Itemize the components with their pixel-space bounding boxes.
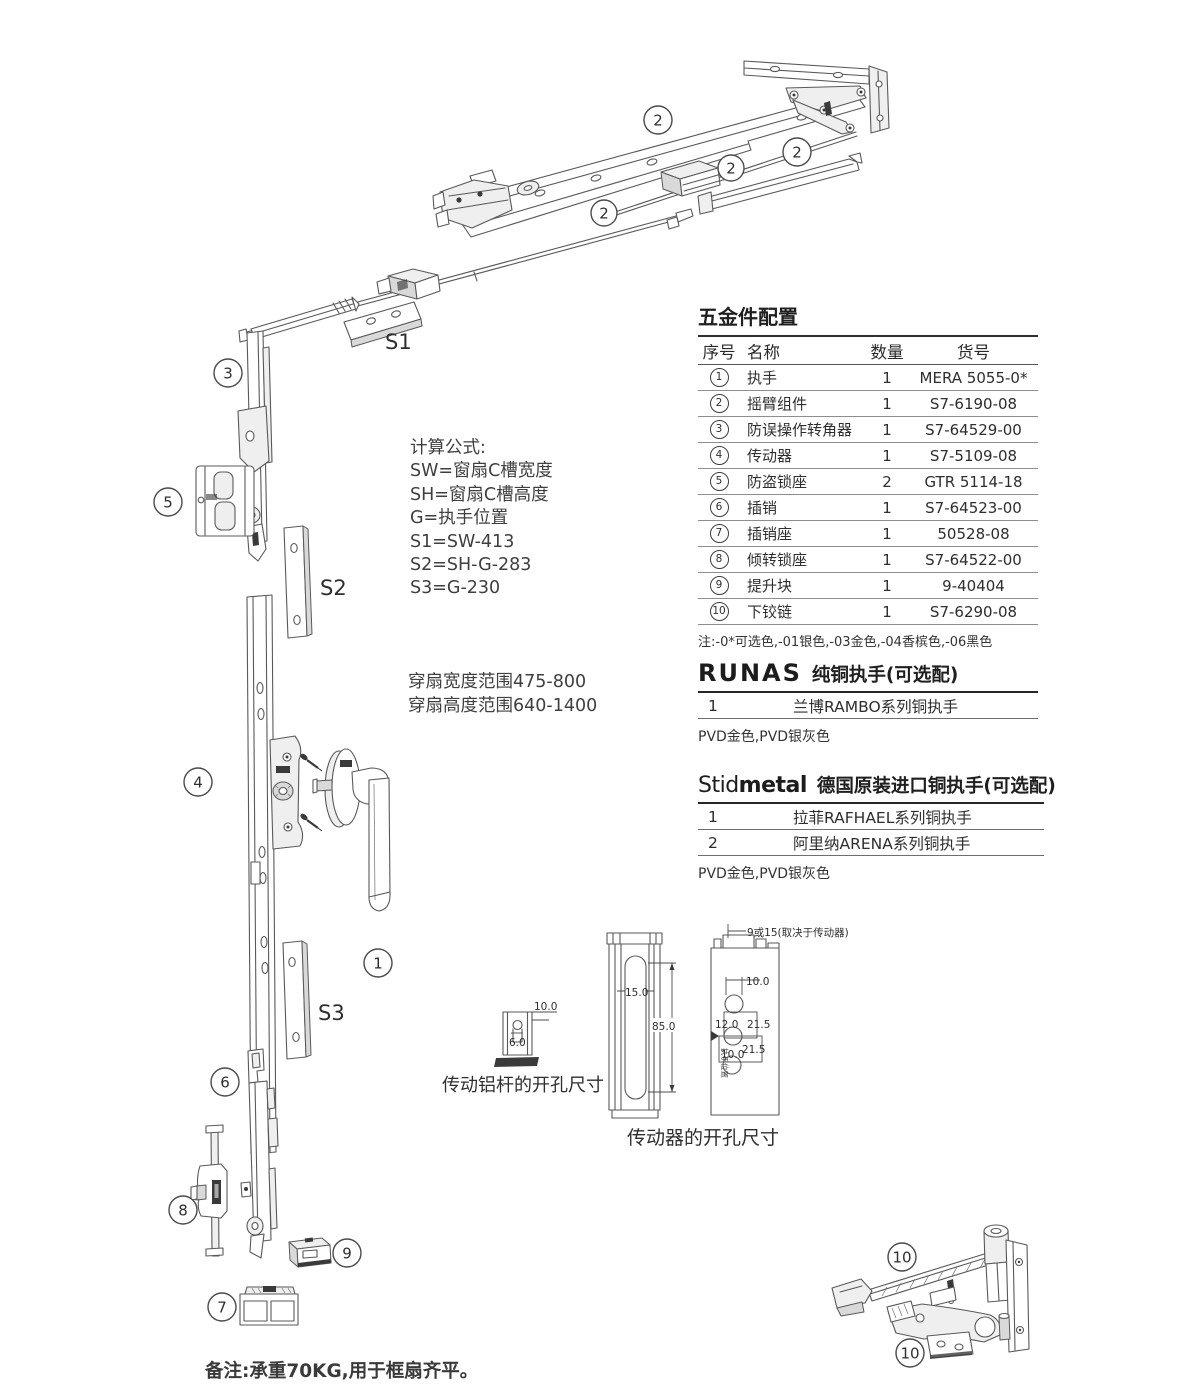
- part-qty: 1: [865, 369, 909, 387]
- callout-part1: 1: [364, 949, 392, 977]
- dim-offset-b: 21.5: [742, 1044, 765, 1056]
- row-number-badge: 9: [710, 576, 729, 595]
- part-1-handle: [313, 749, 390, 911]
- row-number-badge: 3: [710, 420, 729, 439]
- row-number-badge: 1: [710, 368, 729, 387]
- stidmetal-logo-bold: metal: [739, 773, 807, 798]
- col-header-code: 货号: [909, 339, 1038, 363]
- option-name: 拉菲RAFHAEL系列铜执手: [783, 806, 1044, 828]
- callout-label: 2: [792, 144, 802, 162]
- part-code: GTR 5114-18: [909, 473, 1038, 491]
- option-no: 2: [698, 834, 783, 852]
- part-3-corner-drive: [238, 297, 359, 561]
- formula-line: SH=窗扇C槽高度: [410, 484, 553, 507]
- callout-label: 9: [342, 1245, 352, 1263]
- part-name: 插销座: [740, 523, 865, 544]
- formula-line: SW=窗扇C槽宽度: [410, 460, 553, 483]
- dim-rod-width: 10.0: [534, 1001, 557, 1013]
- option-row: 1 拉菲RAFHAEL系列铜执手: [698, 804, 1044, 830]
- part-code: S7-6190-08: [909, 395, 1038, 413]
- part-7-bolt-keeper: [240, 1286, 298, 1325]
- col-header-no: 序号: [698, 339, 740, 363]
- part-name: 提升块: [740, 575, 865, 596]
- part-qty: 1: [865, 499, 909, 517]
- hardware-table-header: 序号 名称 数量 货号: [698, 337, 1038, 365]
- part-name: 摇臂组件: [740, 393, 865, 414]
- option-row: 2 阿里纳ARENA系列铜执手: [698, 830, 1044, 856]
- part-code: MERA 5055-0*: [909, 369, 1038, 387]
- table-row: 6插销1S7-64523-00: [698, 495, 1038, 521]
- bottom-remark: 备注:承重70KG,用于框扇齐平。: [205, 1357, 478, 1383]
- stidmetal-title: 德国原装进口铜执手(可选配): [817, 772, 1056, 798]
- part-name: 执手: [740, 367, 865, 388]
- part-code: S7-5109-08: [909, 447, 1038, 465]
- callout-label: 1: [373, 955, 383, 973]
- callout-part5: 5: [154, 488, 182, 516]
- formula-line: S1=SW-413: [410, 531, 553, 554]
- part-qty: 1: [865, 447, 909, 465]
- table-row: 10下铰链1S7-6290-08: [698, 599, 1038, 625]
- row-number-badge: 2: [710, 394, 729, 413]
- part-qty: 1: [865, 577, 909, 595]
- stidmetal-logo-light: Stid: [698, 773, 739, 798]
- sash-height-range: 穿扇高度范围640-1400: [408, 695, 597, 719]
- dim-slot-height: 85.0: [652, 1021, 675, 1033]
- callout-label: 5: [163, 494, 173, 512]
- callout-label: 10: [892, 1249, 911, 1267]
- option-name: 兰博RAMBO系列铜执手: [783, 695, 1038, 717]
- hardware-table: 五金件配置 序号 名称 数量 货号 1执手1MERA 5055-0* 2摇臂组件…: [698, 301, 1038, 650]
- part-code: S7-64523-00: [909, 499, 1038, 517]
- callout-part3: 3: [214, 359, 242, 387]
- col-header-name: 名称: [740, 339, 865, 363]
- part-code: 9-40404: [909, 577, 1038, 595]
- part-name: 防盗锁座: [740, 471, 865, 492]
- table-row: 2摇臂组件1S7-6190-08: [698, 391, 1038, 417]
- part-name: 防误操作转角器: [740, 419, 865, 440]
- callout-label: 2: [599, 205, 609, 223]
- callout-label: 3: [223, 365, 233, 383]
- formula-line: G=执手位置: [410, 507, 553, 530]
- callout-part2-c: 2: [783, 138, 811, 166]
- part-8-tilt-lock: [191, 1125, 227, 1256]
- hardware-spec-sheet: 10.0 6.0 传动铝杆的开孔尺寸 15.0 85.0 9或15(取决于传动器…: [0, 0, 1200, 1400]
- formula-title: 计算公式:: [410, 437, 553, 460]
- callout-part8: 8: [169, 1196, 197, 1224]
- part-code: S7-64529-00: [909, 421, 1038, 439]
- part-name: 下铰链: [740, 601, 865, 622]
- runas-title: 纯铜执手(可选配): [812, 661, 958, 687]
- s3-label: S3: [318, 1001, 345, 1025]
- option-no: 1: [698, 808, 783, 826]
- col-header-qty: 数量: [865, 339, 909, 363]
- row-number-badge: 10: [710, 602, 729, 621]
- callout-part7: 7: [208, 1293, 236, 1321]
- table-row: 7插销座150528-08: [698, 521, 1038, 547]
- stidmetal-section: Stidmetal 德国原装进口铜执手(可选配) 1 拉菲RAFHAEL系列铜执…: [698, 772, 1044, 883]
- table-row: 1执手1MERA 5055-0*: [698, 365, 1038, 391]
- dim-hole-top: 10.0: [746, 976, 769, 988]
- dim-offset-a: 21.5: [747, 1019, 770, 1031]
- callout-part10-b: 10: [896, 1339, 924, 1367]
- row-number-badge: 5: [710, 472, 729, 491]
- callout-label: 4: [193, 774, 203, 792]
- s2-label: S2: [320, 576, 347, 600]
- part-qty: 1: [865, 603, 909, 621]
- sash-width-range: 穿扇宽度范围475-800: [408, 671, 597, 695]
- row-number-badge: 8: [710, 550, 729, 569]
- row-number-badge: 6: [710, 498, 729, 517]
- dim-rod-caption: 传动铝杆的开孔尺寸: [442, 1075, 604, 1096]
- runas-section: RUNAS 纯铜执手(可选配) 1 兰博RAMBO系列铜执手 PVD金色,PVD…: [698, 659, 1038, 746]
- dim-side-label: 执手位置: [720, 1048, 730, 1078]
- callout-label: 2: [726, 160, 736, 178]
- table-row: 3防误操作转角器1S7-64529-00: [698, 417, 1038, 443]
- part-qty: 1: [865, 551, 909, 569]
- s2-plate: [284, 526, 312, 638]
- option-row: 1 兰博RAMBO系列铜执手: [698, 693, 1038, 719]
- dim-hole-mid: 12.0: [715, 1019, 738, 1031]
- callout-part4: 4: [184, 768, 212, 796]
- runas-header: RUNAS 纯铜执手(可选配): [698, 659, 1038, 693]
- callout-label: 10: [900, 1345, 919, 1363]
- callout-label: 2: [653, 112, 663, 130]
- formula-block: 计算公式: SW=窗扇C槽宽度 SH=窗扇C槽高度 G=执手位置 S1=SW-4…: [410, 437, 553, 601]
- color-option-note: 注:-0*可选色,-01银色,-03金色,-04香槟色,-06黑色: [698, 625, 1038, 650]
- callout-part6: 6: [211, 1068, 239, 1096]
- part-5-lock-keeper: [196, 466, 254, 536]
- stidmetal-header: Stidmetal 德国原装进口铜执手(可选配): [698, 772, 1044, 804]
- part-2-stay-assembly: [239, 61, 889, 342]
- part-name: 插销: [740, 497, 865, 518]
- table-row: 5防盗锁座2GTR 5114-18: [698, 469, 1038, 495]
- part-name: 倾转锁座: [740, 549, 865, 570]
- option-name: 阿里纳ARENA系列铜执手: [783, 832, 1044, 854]
- hardware-table-title: 五金件配置: [698, 301, 1038, 337]
- option-no: 1: [698, 697, 783, 715]
- runas-logo: RUNAS: [698, 659, 802, 687]
- callout-label: 8: [178, 1202, 188, 1220]
- dim-drawing-driver: 15.0 85.0 9或15(取决于传动器) 10.0 12.0 21.5 21…: [607, 924, 849, 1149]
- s1-label: S1: [385, 330, 412, 354]
- table-row: 8倾转锁座1S7-64522-00: [698, 547, 1038, 573]
- callout-part9: 9: [333, 1239, 361, 1267]
- runas-finish-note: PVD金色,PVD银灰色: [698, 719, 1038, 746]
- formula-line: S3=G-230: [410, 577, 553, 600]
- row-number-badge: 7: [710, 524, 729, 543]
- part-qty: 2: [865, 473, 909, 491]
- part-code: S7-64522-00: [909, 551, 1038, 569]
- dim-top-offset: 9或15(取决于传动器): [747, 927, 849, 939]
- callout-part10-a: 10: [888, 1243, 916, 1271]
- callout-part2-d: 2: [591, 200, 617, 226]
- part-9-lift-block: [289, 1238, 331, 1267]
- row-number-badge: 4: [710, 446, 729, 465]
- callout-part2-a: 2: [644, 106, 672, 134]
- stidmetal-logo: Stidmetal: [698, 773, 807, 798]
- part-qty: 1: [865, 395, 909, 413]
- part-qty: 1: [865, 421, 909, 439]
- table-row: 4传动器1S7-5109-08: [698, 443, 1038, 469]
- table-row: 9提升块19-40404: [698, 573, 1038, 599]
- callout-label: 6: [220, 1074, 230, 1092]
- part-10-bottom-hinge: [832, 1225, 1029, 1359]
- sash-range-block: 穿扇宽度范围475-800 穿扇高度范围640-1400: [408, 671, 597, 718]
- part-code: S7-6290-08: [909, 603, 1038, 621]
- dim-drawing-rod: 10.0 6.0 传动铝杆的开孔尺寸: [442, 1001, 604, 1096]
- formula-line: S2=SH-G-283: [410, 554, 553, 577]
- dim-slot-width: 15.0: [625, 987, 648, 999]
- s3-plate: [283, 941, 311, 1059]
- part-name: 传动器: [740, 445, 865, 466]
- part-code: 50528-08: [909, 525, 1038, 543]
- callout-part2-b: 2: [718, 155, 744, 181]
- dim-driver-caption: 传动器的开孔尺寸: [627, 1127, 779, 1149]
- part-qty: 1: [865, 525, 909, 543]
- stidmetal-finish-note: PVD金色,PVD银灰色: [698, 856, 1044, 883]
- callout-label: 7: [217, 1299, 227, 1317]
- dim-rod-inner: 6.0: [509, 1037, 526, 1049]
